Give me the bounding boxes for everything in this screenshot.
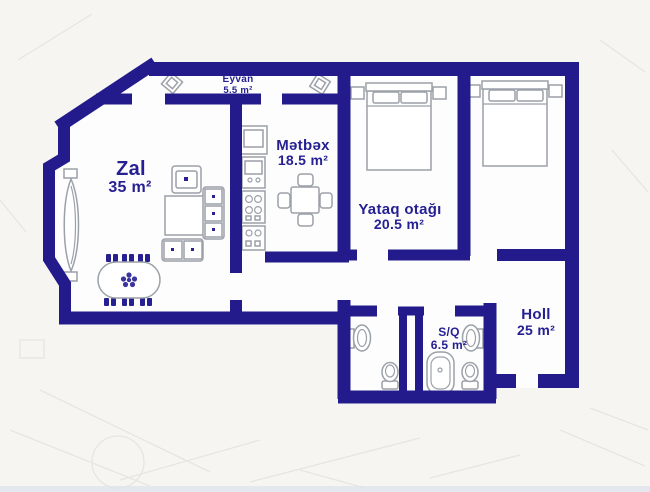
cooktop <box>242 191 265 223</box>
fridge <box>240 126 267 154</box>
room-area-yataq-otagi: 20.5 m² <box>374 216 424 232</box>
room-area-holl: 25 m² <box>517 322 555 338</box>
room-label-sq: S/Q <box>438 325 460 339</box>
floor-plan-svg: Eyvan 5.5 m² Zal 35 m² Mətbəx 18.5 m² Ya… <box>0 0 650 492</box>
bathtub <box>427 352 454 394</box>
room-label-zal: Zal <box>116 158 146 180</box>
room-area-eyvan: 5.5 m² <box>223 85 252 96</box>
kitchen-sink-cabinet <box>242 226 265 250</box>
floor-plan-page: Eyvan 5.5 m² Zal 35 m² Mətbəx 18.5 m² Ya… <box>0 0 650 492</box>
oven <box>242 157 265 188</box>
room-label-holl: Holl <box>521 306 551 323</box>
wc-washbasin <box>349 325 371 351</box>
photo-bottom-edge <box>0 486 650 492</box>
wc-toilet <box>382 363 398 390</box>
armchair <box>172 166 201 193</box>
sofa-2-seat <box>162 239 203 261</box>
room-area-metbex: 18.5 m² <box>278 152 328 168</box>
coffee-table <box>165 196 204 235</box>
sofa-3-seat <box>203 187 224 239</box>
room-area-sq: 6.5 m² <box>431 338 467 352</box>
room-area-zal: 35 m² <box>108 179 151 196</box>
room-label-eyvan: Eyvan <box>223 74 254 85</box>
sq-toilet <box>462 363 478 390</box>
